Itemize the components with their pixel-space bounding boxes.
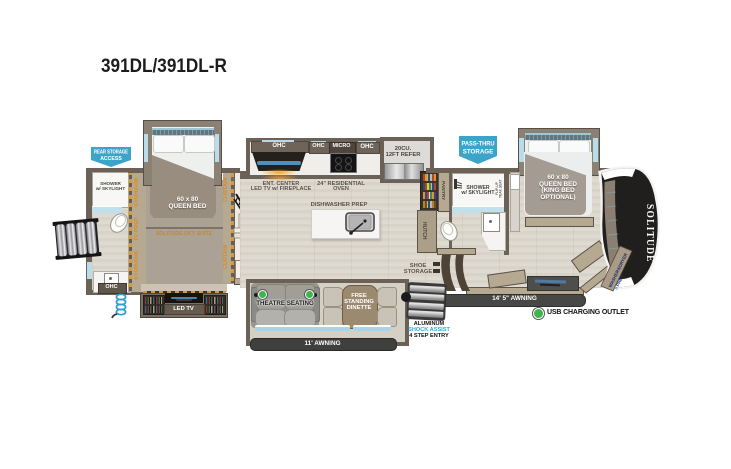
svg-text:REAR STORAGE: REAR STORAGE [94,150,128,156]
svg-text:PASS-THRU: PASS-THRU [462,141,495,148]
svg-text:ACCESS: ACCESS [100,156,122,162]
svg-text:STORAGE: STORAGE [463,149,493,156]
svg-text:SOLITUDE: SOLITUDE [644,204,655,263]
